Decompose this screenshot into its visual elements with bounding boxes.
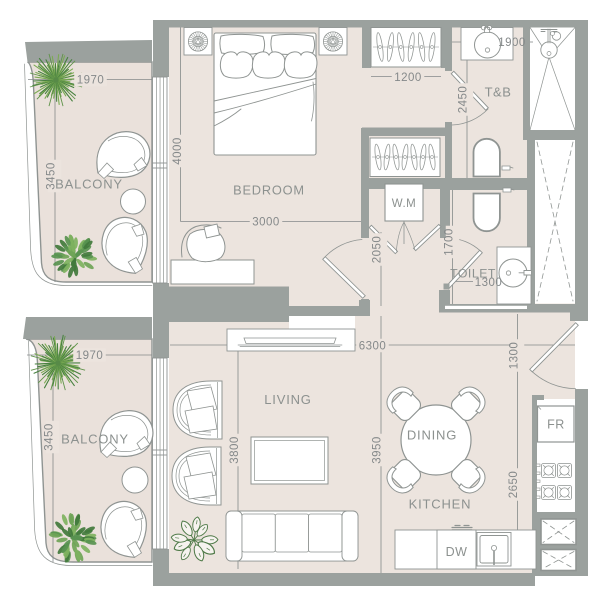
svg-text:2050: 2050 — [372, 236, 384, 264]
svg-text:2650: 2650 — [508, 471, 520, 499]
svg-text:1900: 1900 — [498, 37, 526, 49]
svg-text:3950: 3950 — [372, 436, 384, 464]
svg-text:FR: FR — [547, 418, 565, 432]
svg-text:T&B: T&B — [485, 85, 512, 100]
svg-text:BALCONY: BALCONY — [55, 177, 123, 192]
svg-text:DINING: DINING — [407, 428, 457, 443]
svg-text:1970: 1970 — [76, 350, 104, 362]
svg-text:W.M: W.M — [392, 198, 417, 210]
svg-text:BEDROOM: BEDROOM — [233, 183, 305, 198]
svg-text:2450: 2450 — [458, 86, 470, 114]
svg-text:KITCHEN: KITCHEN — [409, 497, 472, 512]
svg-text:LIVING: LIVING — [264, 392, 311, 407]
svg-text:1300: 1300 — [509, 342, 521, 370]
svg-text:3800: 3800 — [229, 436, 241, 464]
svg-text:DW: DW — [446, 545, 468, 559]
svg-text:4000: 4000 — [172, 137, 184, 165]
svg-text:1970: 1970 — [77, 75, 105, 87]
svg-text:3000: 3000 — [252, 217, 280, 229]
svg-text:BALCONY: BALCONY — [61, 432, 129, 447]
svg-text:6300: 6300 — [359, 341, 387, 353]
svg-text:3450: 3450 — [44, 423, 56, 451]
svg-text:TOILET: TOILET — [450, 267, 496, 281]
svg-text:1200: 1200 — [394, 72, 422, 84]
svg-text:1700: 1700 — [444, 228, 456, 256]
